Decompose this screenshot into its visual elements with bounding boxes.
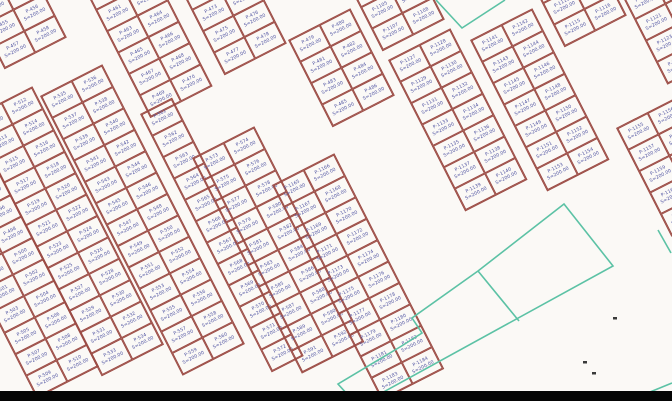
- block-right-edge: P-1155S=200.00P-1156S=200.00P-1157S=200.…: [616, 96, 672, 236]
- block-top-left-corner: P-451S=200.00P-452S=200.00P-453S=200.00P…: [0, 0, 67, 69]
- map-canvas[interactable]: P-451S=200.00P-452S=200.00P-453S=200.00P…: [0, 0, 672, 401]
- bottom-letterbox-bar: [0, 391, 672, 401]
- parcel-layer: P-451S=200.00P-452S=200.00P-453S=200.00P…: [0, 0, 672, 401]
